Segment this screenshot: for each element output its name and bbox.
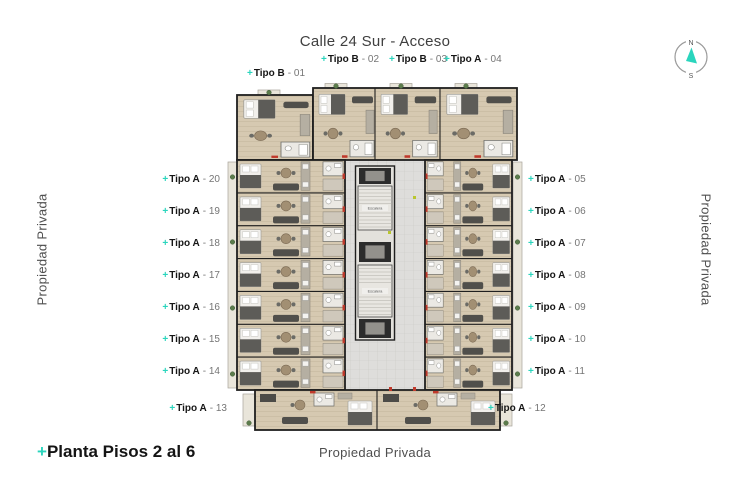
unit-type: Tipo A: [535, 238, 566, 249]
unit-type: Tipo A: [169, 270, 200, 281]
plus-marker-icon: +: [488, 403, 494, 414]
unit-number: - 05: [568, 174, 585, 185]
plus-marker-icon: +: [162, 302, 168, 313]
stair-label-upper: Escalera: [368, 207, 384, 211]
unit-number: - 09: [568, 302, 585, 313]
plan-title: +Planta Pisos 2 al 6: [37, 442, 195, 462]
street-title: Calle 24 Sur - Acceso: [225, 33, 525, 50]
door-marker: [413, 387, 416, 391]
unit-type: Tipo A: [535, 366, 566, 377]
plus-marker-icon: +: [528, 366, 534, 377]
boundary-bottom: Propiedad Privada: [225, 445, 525, 460]
plus-marker-icon: +: [389, 54, 395, 65]
unit-number: - 13: [210, 403, 227, 414]
unit-label-tipo-a-20[interactable]: +Tipo A- 20: [162, 174, 220, 186]
unit-number: - 06: [568, 206, 585, 217]
unit-label-tipo-a-14[interactable]: +Tipo A- 14: [162, 366, 220, 378]
corridor-marker: [388, 231, 391, 234]
unit-number: - 17: [203, 270, 220, 281]
compass-north-label: N: [688, 40, 693, 47]
stairwell-lower: Escalera: [358, 265, 392, 317]
plus-marker-icon: +: [37, 442, 47, 461]
floor-plan-page: Calle 24 Sur - Acceso N S Propiedad Priv…: [0, 0, 750, 500]
unit-type: Tipo A: [535, 334, 566, 345]
unit-label-tipo-a-06[interactable]: +Tipo A- 06: [528, 206, 586, 218]
unit-label-tipo-a-19[interactable]: +Tipo A- 19: [162, 206, 220, 218]
unit-label-tipo-a-10[interactable]: +Tipo A- 10: [528, 334, 586, 346]
unit-label-tipo-a-05[interactable]: +Tipo A- 05: [528, 174, 586, 186]
unit-number: - 14: [203, 366, 220, 377]
unit-number: - 18: [203, 238, 220, 249]
plus-marker-icon: +: [528, 302, 534, 313]
unit-label-tipo-b-03[interactable]: +Tipo B- 03: [389, 54, 447, 66]
boundary-right: Propiedad Privada: [699, 150, 714, 350]
unit-label-tipo-a-16[interactable]: +Tipo A- 16: [162, 302, 220, 314]
stair-label-lower: Escalera: [368, 290, 384, 294]
plus-marker-icon: +: [247, 68, 253, 79]
unit-type: Tipo A: [169, 238, 200, 249]
stairwell-upper: Escalera: [358, 186, 392, 230]
unit-label-tipo-a-18[interactable]: +Tipo A- 18: [162, 238, 220, 250]
unit-type: Tipo A: [451, 54, 482, 65]
unit-label-tipo-a-13[interactable]: +Tipo A- 13: [169, 403, 227, 415]
plus-marker-icon: +: [528, 174, 534, 185]
unit-number: - 15: [203, 334, 220, 345]
unit-type: Tipo A: [169, 302, 200, 313]
plus-marker-icon: +: [169, 403, 175, 414]
plus-marker-icon: +: [162, 334, 168, 345]
plus-marker-icon: +: [321, 54, 327, 65]
unit-number: - 11: [568, 366, 585, 377]
unit-type: Tipo A: [169, 366, 200, 377]
unit-label-tipo-a-17[interactable]: +Tipo A- 17: [162, 270, 220, 282]
floor-plan-drawing: Escalera Escalera: [225, 82, 525, 438]
unit-type: Tipo A: [169, 174, 200, 185]
unit-label-tipo-a-09[interactable]: +Tipo A- 09: [528, 302, 586, 314]
unit-label-tipo-a-12[interactable]: +Tipo A- 12: [488, 403, 546, 415]
plus-marker-icon: +: [444, 54, 450, 65]
plus-marker-icon: +: [162, 238, 168, 249]
unit-label-tipo-a-07[interactable]: +Tipo A- 07: [528, 238, 586, 250]
unit-type: Tipo B: [328, 54, 359, 65]
unit-label-tipo-a-15[interactable]: +Tipo A- 15: [162, 334, 220, 346]
plus-marker-icon: +: [528, 270, 534, 281]
compass-south-label: S: [689, 73, 694, 80]
unit-label-tipo-a-08[interactable]: +Tipo A- 08: [528, 270, 586, 282]
unit-label-tipo-b-01[interactable]: +Tipo B- 01: [247, 68, 305, 80]
compass: N S: [667, 33, 715, 81]
boundary-left: Propiedad Privada: [35, 150, 50, 350]
plus-marker-icon: +: [162, 366, 168, 377]
unit-number: - 10: [568, 334, 585, 345]
unit-number: - 07: [568, 238, 585, 249]
unit-label-tipo-a-11[interactable]: +Tipo A- 11: [528, 366, 585, 378]
unit-type: Tipo A: [176, 403, 207, 414]
unit-number: - 12: [528, 403, 545, 414]
plus-marker-icon: +: [528, 334, 534, 345]
unit-type: Tipo A: [169, 206, 200, 217]
plus-marker-icon: +: [528, 206, 534, 217]
plus-marker-icon: +: [162, 174, 168, 185]
unit-number: - 16: [203, 302, 220, 313]
unit-type: Tipo A: [535, 206, 566, 217]
unit-type: Tipo A: [169, 334, 200, 345]
unit-label-tipo-a-04[interactable]: +Tipo A- 04: [444, 54, 502, 66]
door-marker: [389, 387, 392, 391]
north-arrow-icon: [686, 48, 697, 64]
unit-type: Tipo A: [535, 174, 566, 185]
unit-number: - 02: [362, 54, 379, 65]
unit-type: Tipo A: [535, 270, 566, 281]
unit-type: Tipo B: [396, 54, 427, 65]
plan-title-text: Planta Pisos 2 al 6: [47, 442, 195, 461]
unit-number: - 01: [288, 68, 305, 79]
unit-label-tipo-b-02[interactable]: +Tipo B- 02: [321, 54, 379, 66]
unit-number: - 04: [484, 54, 501, 65]
corridor-marker: [413, 196, 416, 199]
plus-marker-icon: +: [528, 238, 534, 249]
unit-type: Tipo A: [495, 403, 526, 414]
unit-type: Tipo A: [535, 302, 566, 313]
unit-number: - 08: [568, 270, 585, 281]
plus-marker-icon: +: [162, 206, 168, 217]
unit-number: - 19: [203, 206, 220, 217]
unit-type: Tipo B: [254, 68, 285, 79]
unit-number: - 20: [203, 174, 220, 185]
plus-marker-icon: +: [162, 270, 168, 281]
